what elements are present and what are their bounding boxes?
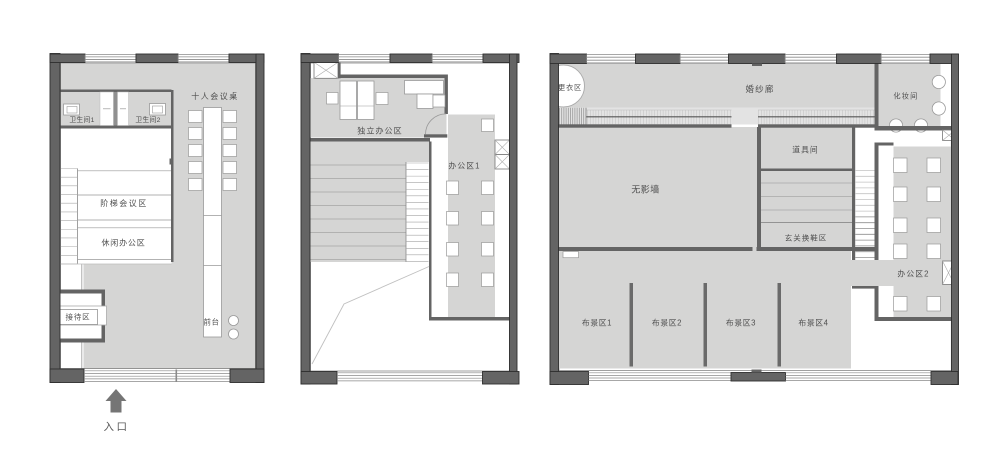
svg-text:布景区3: 布景区3: [726, 317, 756, 327]
svg-text:办公区2: 办公区2: [897, 269, 929, 279]
svg-text:玄关换鞋区: 玄关换鞋区: [785, 233, 828, 243]
svg-text:独立办公区: 独立办公区: [357, 125, 403, 135]
svg-text:无影墙: 无影墙: [631, 184, 659, 195]
svg-text:更衣区: 更衣区: [558, 83, 582, 92]
svg-text:布景区4: 布景区4: [798, 317, 828, 327]
svg-text:布景区1: 布景区1: [582, 317, 612, 327]
svg-text:婚纱廊: 婚纱廊: [745, 84, 774, 94]
svg-text:布景区2: 布景区2: [652, 317, 682, 327]
svg-text:阶梯会议区: 阶梯会议区: [100, 198, 148, 208]
svg-text:办公区1: 办公区1: [448, 161, 480, 171]
svg-text:接待区: 接待区: [66, 312, 91, 322]
svg-text:道具间: 道具间: [792, 145, 818, 155]
svg-text:前台: 前台: [204, 317, 220, 327]
svg-text:卫生间1: 卫生间1: [69, 115, 94, 124]
svg-text:入口: 入口: [104, 421, 130, 433]
svg-text:休闲办公区: 休闲办公区: [102, 237, 146, 247]
svg-text:十人会议桌: 十人会议桌: [191, 91, 239, 101]
svg-text:卫生间2: 卫生间2: [135, 115, 160, 124]
svg-text:化妆间: 化妆间: [893, 92, 918, 101]
